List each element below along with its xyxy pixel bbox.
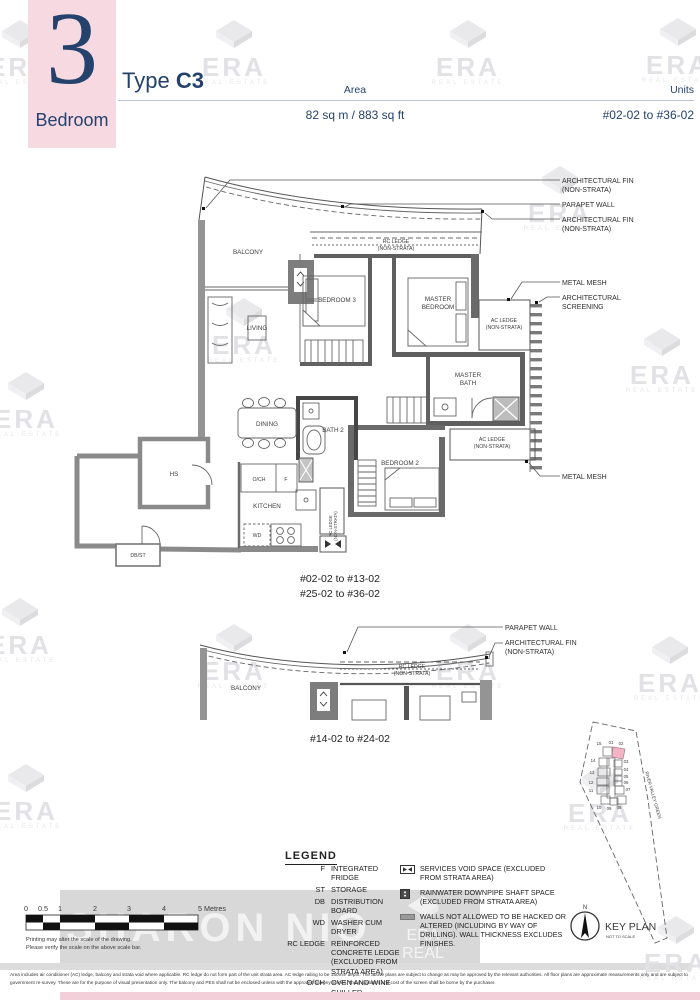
legend-row: WDWASHER CUM DRYER <box>283 918 401 937</box>
legend-symbol-row: SERVICES VOID SPACE (EXCLUDED FROM STRAT… <box>400 864 568 882</box>
legend-row: DBDISTRIBUTION BOARD <box>283 897 401 916</box>
callout-arch-fin-top-2: (NON-STRATA) <box>562 187 611 194</box>
callout-arch-fin-2-1: ARCHITECTURAL FIN <box>562 217 634 224</box>
callout-metal-mesh-lower: METAL MESH <box>562 474 607 481</box>
era-watermark-brand: ERA <box>0 632 68 658</box>
room-label-ac-ledge-low-1: AC LEDGE <box>479 437 506 443</box>
area-label: Area <box>265 84 445 96</box>
legend-desc: DISTRIBUTION BOARD <box>331 897 401 916</box>
legend-symbols: SERVICES VOID SPACE (EXCLUDED FROM STRAT… <box>400 864 568 954</box>
scale-label-1: 1 <box>58 904 62 913</box>
callout-parapet-wall: PARAPET WALL <box>562 202 615 209</box>
room-label-ac-ledge-low-2: (NON-STRATA) <box>474 444 511 450</box>
stack-07: 07 <box>626 787 631 792</box>
header-rule <box>118 100 694 101</box>
main-plan-caption: #02-02 to #13-02 #25-02 to #36-02 <box>250 572 430 601</box>
rainwater-downpipe-icon <box>400 888 420 906</box>
era-watermark: ERA REAL ESTATE <box>420 20 516 86</box>
master-bath-fixtures <box>434 397 519 421</box>
highlighted-unit <box>612 747 625 759</box>
stack-14: 14 <box>591 758 596 763</box>
second-plan-caption: #14-02 to #24-02 <box>270 732 430 747</box>
room-label-master-bath-2: BATH <box>460 380 477 387</box>
room-label-master-bedroom-2: BEDROOM <box>422 304 455 311</box>
room-label-bedroom2: BEDROOM 2 <box>381 460 419 467</box>
footer-accent-bar <box>60 992 700 1000</box>
architectural-screening <box>530 302 542 472</box>
legend-desc: WALLS NOT ALLOWED TO BE HACKED OR ALTERE… <box>420 912 568 948</box>
legend-desc: WASHER CUM DRYER <box>331 918 401 937</box>
stack-10: 10 <box>597 805 602 810</box>
era-logo-icon <box>440 20 496 54</box>
callout-arch-fin-2-2: (NON-STRATA) <box>562 226 611 233</box>
unit-type-value: C3 <box>176 68 204 93</box>
stack-13: 13 <box>590 770 595 775</box>
scale-label-5-metres: 5 Metres <box>198 904 226 913</box>
room-label-rc-ledge-1: RC LEDGE <box>399 664 426 670</box>
key-plan: 15 01 02 14 03 13 04 12 05 06 11 07 10 0… <box>555 700 700 960</box>
era-logo-icon <box>0 764 54 798</box>
callout-arch-screening-1: ARCHITECTURAL <box>562 295 621 302</box>
era-logo-icon <box>0 598 48 632</box>
callout-arch-fin-2: (NON-STRATA) <box>505 649 554 656</box>
stack-11: 11 <box>589 788 594 793</box>
era-watermark-brand: ERA <box>420 54 516 80</box>
scale-label-2: 2 <box>93 904 97 913</box>
legend-desc: INTEGRATED FRIDGE <box>331 864 401 883</box>
legend-desc: SERVICES VOID SPACE (EXCLUDED FROM STRAT… <box>420 864 568 882</box>
legend-symbol-row: RAINWATER DOWNPIPE SHAFT SPACE (EXCLUDED… <box>400 888 568 906</box>
stack-04: 04 <box>624 767 629 772</box>
key-plan-subtitle: NOT TO SCALE <box>606 934 635 939</box>
legend-desc: RAINWATER DOWNPIPE SHAFT SPACE (EXCLUDED… <box>420 888 568 906</box>
stack-15: 15 <box>597 741 602 746</box>
room-label-ac-ledge-up-1: AC LEDGE <box>491 318 518 324</box>
scale-label-3: 3 <box>127 904 131 913</box>
scale-labels: 0 0.5 1 2 3 4 5 Metres <box>24 904 226 913</box>
era-watermark-brand: ERA <box>622 670 700 696</box>
callout-arch-screening-2: SCREENING <box>562 304 604 311</box>
room-label-living: LIVING <box>247 325 268 332</box>
services-void-icon <box>400 864 420 882</box>
scale-bar: 0 0.5 1 2 3 4 5 Metres Printing may alte… <box>16 902 266 954</box>
legend-row: STSTORAGE <box>283 885 401 894</box>
era-watermark: ERA REAL ESTATE <box>0 598 68 664</box>
stack-06: 06 <box>624 780 629 785</box>
disclaimer-text: Area includes air conditioner (AC) ledge… <box>10 971 694 986</box>
era-watermark-brand: ERA <box>630 52 700 78</box>
parapet-curve <box>199 177 482 254</box>
legend-abbr: DB <box>283 897 325 916</box>
era-logo-icon <box>206 20 262 54</box>
room-label-wd: WD <box>253 533 262 539</box>
room-label-fridge: F <box>284 477 287 483</box>
callout-leaders <box>343 627 503 659</box>
bedroom-count: 3 <box>30 0 114 103</box>
bedroom-label: Bedroom <box>28 110 116 131</box>
legend-abbr: WD <box>283 918 325 937</box>
era-watermark-tagline: REAL ESTATE <box>0 658 68 664</box>
scale-label-4: 4 <box>162 904 166 913</box>
era-watermark: ERA REAL ESTATE <box>622 636 700 702</box>
stack-03: 03 <box>624 759 629 764</box>
scale-note-1: Printing may alter the scale of the draw… <box>26 937 132 943</box>
callout-metal-mesh: METAL MESH <box>562 280 607 287</box>
legend-title: LEGEND <box>285 850 337 865</box>
room-label-balcony: BALCONY <box>233 249 264 256</box>
room-label-rc-ledge-2: (NON-STRATA) <box>378 246 415 252</box>
stack-09: 09 <box>607 806 612 811</box>
legend-abbr: F <box>283 864 325 883</box>
bath2-fixtures <box>299 403 325 482</box>
era-watermark-brand: ERA <box>0 798 74 824</box>
room-label-hs: HS <box>170 471 179 478</box>
room-label-master-bath-1: MASTER <box>455 372 482 379</box>
stack-08: 08 <box>617 805 622 810</box>
key-plan-title: KEY PLAN <box>605 921 656 933</box>
building-cluster <box>597 747 626 805</box>
callout-arch-fin-top-1: ARCHITECTURAL FIN <box>562 178 634 185</box>
legend-abbr: ST <box>283 885 325 894</box>
legend: LEGEND FINTEGRATED FRIDGE STSTORAGE DBDI… <box>283 846 583 865</box>
room-label-balcony: BALCONY <box>231 685 262 692</box>
room-label-ac-ledge-up-2: (NON-STRATA) <box>486 325 523 331</box>
scale-label-0-5: 0.5 <box>38 904 48 913</box>
stack-12: 12 <box>589 780 594 785</box>
units-value: #02-02 to #36-02 <box>474 108 694 122</box>
callout-arch-fin-1: ARCHITECTURAL FIN <box>505 640 577 647</box>
era-watermark-tagline: REAL ESTATE <box>0 824 74 830</box>
stack-02: 02 <box>619 741 624 746</box>
callout-parapet-wall: PARAPET WALL <box>505 625 558 632</box>
main-floor-plan: BALCONY RC LEDGE (NON-STRATA) BEDROOM 3 … <box>60 150 660 580</box>
era-watermark: ERA REAL ESTATE <box>0 764 74 830</box>
units-label: Units <box>494 84 694 96</box>
unit-type-prefix: Type <box>122 68 170 93</box>
room-label-rc-ledge-1: RC LEDGE <box>383 239 410 245</box>
legend-desc: STORAGE <box>331 885 401 894</box>
unit-type-title: Type C3 <box>122 68 204 94</box>
area-value: 82 sq m / 883 sq ft <box>245 108 465 122</box>
room-label-rc-ledge-2: (NON-STRATA) <box>394 671 431 677</box>
legend-row: FINTEGRATED FRIDGE <box>283 864 401 883</box>
room-label-rc-ledge-vert-2: (NON-STRATA) <box>333 511 338 541</box>
era-logo-icon <box>642 636 698 670</box>
era-logo-icon <box>650 18 700 52</box>
compass: N <box>571 905 599 940</box>
legend-symbol-row: WALLS NOT ALLOWED TO BE HACKED OR ALTERE… <box>400 912 568 948</box>
bedroom2-furniture <box>358 460 439 510</box>
scale-bar-segments <box>26 915 198 930</box>
era-watermark: ERA REAL ESTATE <box>630 18 700 84</box>
restricted-wall-icon <box>400 912 420 948</box>
room-label-bath2: BATH 2 <box>322 427 344 434</box>
room-label-bedroom3: BEDROOM 3 <box>318 297 356 304</box>
scale-note-2: Please verify the scale on the above sca… <box>26 945 142 951</box>
room-label-master-bedroom-1: MASTER <box>425 296 452 303</box>
stack-05: 05 <box>624 774 629 779</box>
room-label-och: O/CH <box>253 477 266 483</box>
era-logo-icon <box>0 372 54 406</box>
main-plan-caption-line1: #02-02 to #13-02 <box>250 572 430 587</box>
room-label-kitchen: KITCHEN <box>253 503 281 510</box>
scale-label-0: 0 <box>24 904 28 913</box>
main-plan-caption-line2: #25-02 to #36-02 <box>250 587 430 602</box>
room-label-dbst: DB/ST <box>130 553 146 559</box>
second-floor-plan: BALCONY RC LEDGE (NON-STRATA) PARAPET WA… <box>180 612 600 742</box>
room-label-dining: DINING <box>256 421 278 428</box>
compass-north-label: N <box>583 905 587 911</box>
stack-01: 01 <box>609 740 614 745</box>
